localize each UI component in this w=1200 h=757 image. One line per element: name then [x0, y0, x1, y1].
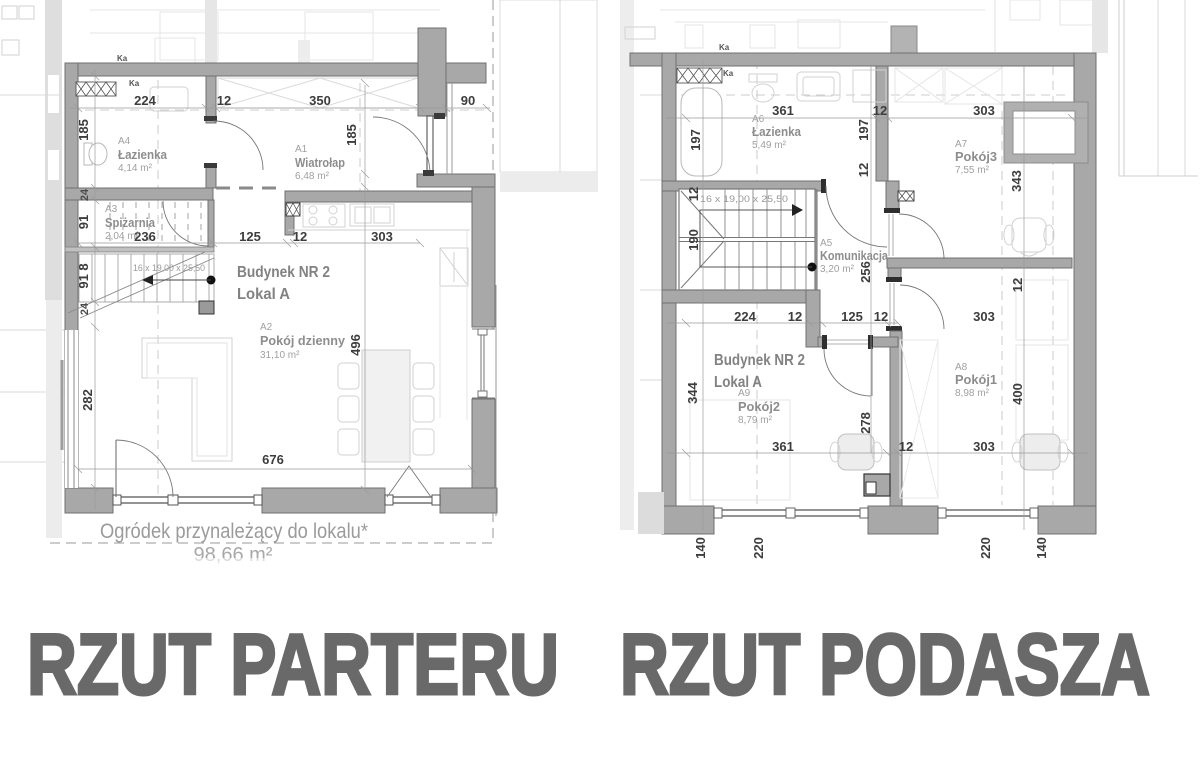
- svg-text:12: 12: [686, 187, 701, 201]
- svg-text:7,55 m²: 7,55 m²: [955, 165, 990, 176]
- svg-text:24: 24: [79, 188, 91, 201]
- svg-text:278: 278: [858, 412, 873, 434]
- svg-text:Wiatrołap: Wiatrołap: [295, 155, 345, 170]
- svg-text:220: 220: [751, 537, 766, 559]
- svg-text:Ogródek przynależący do lokalu: Ogródek przynależący do lokalu*: [100, 520, 368, 543]
- svg-text:220: 220: [978, 537, 993, 559]
- svg-text:91: 91: [76, 215, 91, 229]
- svg-text:303: 303: [973, 103, 995, 118]
- svg-text:A1: A1: [295, 144, 308, 155]
- svg-text:Komunikacja: Komunikacja: [820, 248, 889, 263]
- svg-text:125: 125: [841, 309, 863, 324]
- svg-text:303: 303: [973, 439, 995, 454]
- svg-text:91 8: 91 8: [76, 263, 91, 288]
- svg-text:16 x 19,00 x 25,50: 16 x 19,00 x 25,50: [133, 263, 205, 273]
- svg-text:Ka: Ka: [117, 54, 128, 63]
- svg-text:31,10 m²: 31,10 m²: [260, 350, 300, 361]
- svg-text:Pokój2: Pokój2: [738, 399, 780, 414]
- svg-text:Łazienka: Łazienka: [118, 147, 168, 162]
- svg-text:140: 140: [1034, 537, 1049, 559]
- svg-text:197: 197: [856, 119, 871, 141]
- svg-text:Budynek NR 2: Budynek NR 2: [237, 264, 330, 281]
- svg-text:Lokal A: Lokal A: [237, 286, 290, 303]
- svg-text:A4: A4: [118, 136, 131, 147]
- svg-text:3,20 m²: 3,20 m²: [820, 264, 855, 275]
- svg-text:197: 197: [688, 129, 703, 151]
- svg-text:361: 361: [772, 103, 794, 118]
- svg-text:RZUT PODASZA: RZUT PODASZA: [620, 617, 1150, 713]
- svg-text:Budynek NR 2: Budynek NR 2: [714, 352, 805, 369]
- svg-text:Pokój dzienny: Pokój dzienny: [260, 333, 346, 348]
- svg-text:RZUT PARTERU: RZUT PARTERU: [27, 617, 559, 713]
- svg-text:400: 400: [1010, 383, 1025, 405]
- svg-text:Pokój1: Pokój1: [955, 372, 997, 387]
- svg-text:8,79 m²: 8,79 m²: [738, 415, 773, 426]
- svg-text:A9: A9: [738, 388, 751, 399]
- svg-text:Ka: Ka: [719, 43, 730, 52]
- svg-text:A2: A2: [260, 322, 273, 333]
- svg-text:Pokój3: Pokój3: [955, 149, 997, 164]
- svg-text:Ka: Ka: [129, 79, 140, 88]
- svg-text:303: 303: [973, 309, 995, 324]
- svg-text:2,04 m²: 2,04 m²: [105, 231, 140, 242]
- svg-text:361: 361: [772, 439, 794, 454]
- svg-text:256: 256: [858, 261, 873, 283]
- svg-text:12: 12: [874, 309, 888, 324]
- svg-text:8,98 m²: 8,98 m²: [955, 388, 990, 399]
- svg-text:496: 496: [348, 334, 363, 356]
- svg-text:125: 125: [239, 229, 261, 244]
- svg-text:12: 12: [899, 439, 913, 454]
- svg-text:12: 12: [293, 229, 307, 244]
- svg-text:676: 676: [262, 452, 284, 467]
- svg-text:Łazienka: Łazienka: [752, 124, 802, 139]
- svg-text:140: 140: [693, 537, 708, 559]
- svg-text:224: 224: [134, 93, 156, 108]
- svg-text:Ka: Ka: [723, 69, 734, 78]
- svg-text:12: 12: [1010, 278, 1025, 292]
- svg-text:6,48 m²: 6,48 m²: [295, 171, 330, 182]
- svg-text:5,49 m²: 5,49 m²: [752, 140, 787, 151]
- svg-text:303: 303: [371, 229, 393, 244]
- svg-text:185: 185: [344, 124, 359, 146]
- svg-text:16 x 19,00 x 25,50: 16 x 19,00 x 25,50: [700, 194, 788, 204]
- svg-text:350: 350: [309, 93, 331, 108]
- svg-text:344: 344: [685, 381, 700, 403]
- svg-text:12: 12: [788, 309, 802, 324]
- svg-text:224: 224: [734, 309, 756, 324]
- svg-text:12: 12: [217, 93, 231, 108]
- svg-text:A3: A3: [105, 204, 118, 215]
- svg-text:185: 185: [76, 119, 91, 141]
- svg-text:12: 12: [856, 163, 871, 177]
- svg-text:24: 24: [79, 302, 91, 315]
- svg-text:282: 282: [80, 389, 95, 411]
- svg-text:90: 90: [461, 93, 475, 108]
- svg-text:Spiżarnia: Spiżarnia: [105, 215, 156, 230]
- svg-text:12: 12: [873, 103, 887, 118]
- svg-text:190: 190: [686, 229, 701, 251]
- svg-text:343: 343: [1009, 170, 1024, 192]
- svg-text:4,14 m²: 4,14 m²: [118, 163, 153, 174]
